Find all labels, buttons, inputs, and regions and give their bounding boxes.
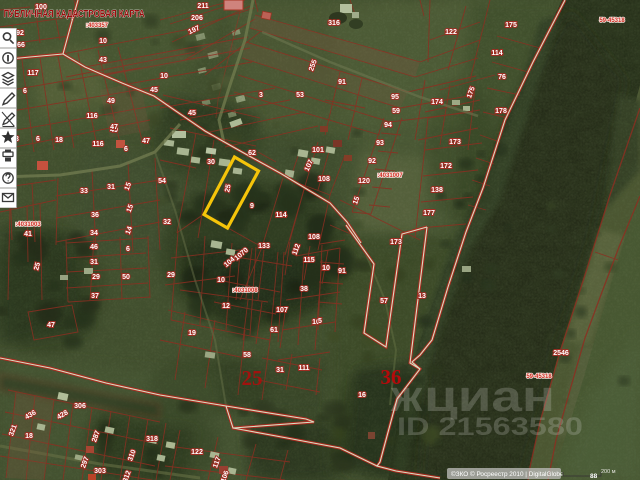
svg-text:3: 3 [259, 92, 263, 99]
svg-text:111: 111 [299, 365, 310, 372]
svg-text:174: 174 [431, 99, 443, 106]
svg-text:49: 49 [107, 98, 115, 105]
svg-text:177: 177 [423, 210, 435, 217]
svg-text:95: 95 [391, 94, 399, 101]
svg-text:32: 32 [163, 219, 171, 226]
svg-text:41: 41 [24, 231, 32, 238]
svg-text:114: 114 [491, 50, 502, 57]
svg-text:19: 19 [188, 330, 196, 337]
svg-text:12: 12 [222, 303, 230, 310]
svg-text:37: 37 [91, 293, 99, 300]
svg-text:92: 92 [368, 158, 376, 165]
svg-text:93: 93 [376, 140, 384, 147]
svg-text:10: 10 [322, 265, 330, 272]
svg-text:66: 66 [17, 42, 25, 49]
svg-text::4031007: :4031007 [377, 173, 403, 179]
svg-text:36: 36 [91, 212, 99, 219]
svg-text:76: 76 [498, 74, 506, 81]
svg-text:46: 46 [90, 244, 98, 251]
svg-text:16: 16 [358, 392, 366, 399]
svg-text:43: 43 [99, 57, 107, 64]
svg-text:178: 178 [495, 108, 507, 115]
svg-text:59: 59 [392, 108, 400, 115]
svg-text:30: 30 [207, 159, 215, 166]
svg-text:62: 62 [248, 150, 256, 157]
svg-text:6: 6 [126, 246, 130, 253]
svg-text:116: 116 [92, 141, 103, 148]
svg-text:92: 92 [16, 30, 24, 37]
svg-text:45: 45 [150, 87, 158, 94]
svg-text:172: 172 [440, 163, 452, 170]
svg-text:47: 47 [47, 322, 55, 329]
svg-text:34: 34 [90, 230, 98, 237]
svg-text:91: 91 [338, 79, 346, 86]
svg-text:45: 45 [188, 110, 196, 117]
svg-text:173: 173 [449, 139, 461, 146]
svg-text:ПУБЛИЧНАЯ КАДАСТРОВАЯ КАРТА: ПУБЛИЧНАЯ КАДАСТРОВАЯ КАРТА [4, 9, 145, 20]
svg-text:59-45318: 59-45318 [599, 18, 625, 24]
svg-text:108: 108 [318, 176, 330, 183]
svg-text:115: 115 [303, 257, 314, 264]
svg-text:53: 53 [296, 92, 304, 99]
svg-text:10: 10 [160, 73, 168, 80]
svg-text:101: 101 [312, 147, 324, 154]
svg-text:117: 117 [27, 70, 38, 77]
svg-text:13: 13 [418, 293, 426, 300]
svg-text:133: 133 [258, 243, 270, 250]
svg-text:10: 10 [99, 38, 107, 45]
svg-text:138: 138 [431, 187, 443, 194]
svg-text:31: 31 [90, 259, 98, 266]
svg-text:200 м: 200 м [601, 469, 616, 475]
svg-text:306: 306 [74, 403, 86, 410]
svg-text:107: 107 [276, 307, 288, 314]
svg-text:25: 25 [242, 366, 263, 390]
svg-text:6: 6 [36, 136, 40, 143]
svg-text:54: 54 [158, 178, 166, 185]
svg-text:91: 91 [338, 268, 346, 275]
svg-text:10: 10 [217, 277, 225, 284]
svg-text:33: 33 [80, 188, 88, 195]
svg-text:116: 116 [86, 113, 97, 120]
svg-text:316: 316 [328, 20, 340, 27]
svg-text:31: 31 [276, 367, 284, 374]
svg-text:47: 47 [110, 124, 118, 131]
svg-text:©ЗКО © Росреестр 2010 | Digita: ©ЗКО © Росреестр 2010 | DigitalGlobe [451, 470, 564, 478]
svg-text:57: 57 [380, 298, 388, 305]
svg-text:206: 206 [191, 15, 203, 22]
svg-text:6: 6 [124, 146, 128, 153]
svg-text:47: 47 [142, 138, 150, 145]
svg-text:18: 18 [25, 433, 33, 440]
svg-text:114: 114 [275, 212, 286, 219]
svg-text:18: 18 [55, 137, 63, 144]
svg-text:31: 31 [107, 184, 115, 191]
svg-text:5: 5 [318, 318, 322, 325]
svg-text:122: 122 [191, 449, 203, 456]
svg-text:122: 122 [445, 29, 457, 36]
svg-text:50: 50 [122, 274, 130, 281]
svg-text:29: 29 [167, 272, 175, 279]
svg-text:108: 108 [308, 234, 320, 241]
svg-text:58: 58 [243, 352, 251, 359]
svg-text:38: 38 [300, 286, 308, 293]
svg-text:88: 88 [590, 473, 598, 480]
svg-text::403357: :403357 [86, 23, 109, 29]
svg-text:61: 61 [270, 327, 278, 334]
svg-text:211: 211 [197, 3, 208, 10]
svg-text:6: 6 [23, 88, 27, 95]
svg-text::4031008: :4031008 [232, 288, 258, 294]
svg-text:120: 120 [358, 178, 370, 185]
svg-text::4031003: :4031003 [15, 222, 41, 228]
svg-text:9: 9 [250, 203, 254, 210]
svg-text:2546: 2546 [553, 350, 569, 357]
svg-text:175: 175 [505, 22, 517, 29]
svg-text:173: 173 [390, 239, 402, 246]
svg-text:318: 318 [146, 436, 158, 443]
svg-text:303: 303 [94, 468, 106, 475]
svg-text:ID 21563580: ID 21563580 [397, 413, 583, 441]
svg-text:29: 29 [92, 274, 100, 281]
svg-text:94: 94 [384, 122, 392, 129]
